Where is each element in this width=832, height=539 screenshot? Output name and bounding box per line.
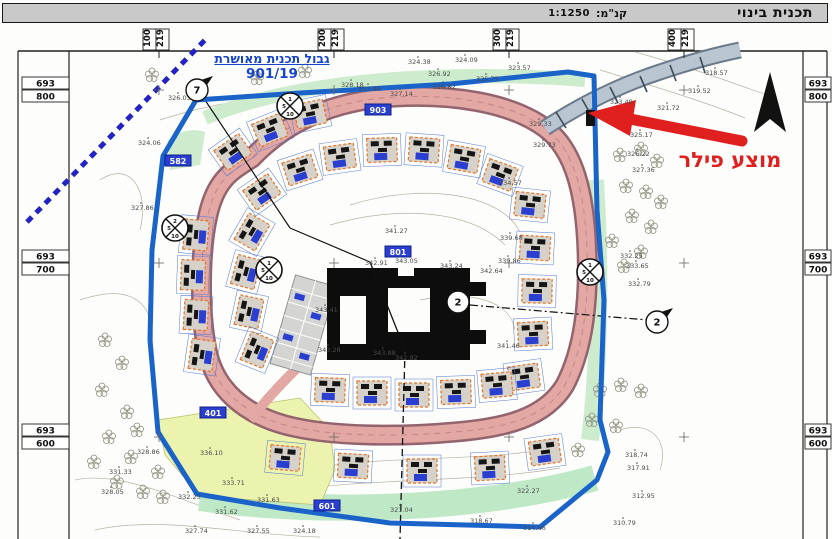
- tree-symbol: [152, 465, 165, 479]
- elevation-label: 312.95: [632, 492, 655, 500]
- elevation-label: 328.05: [101, 488, 124, 496]
- elevation-label: 332.79: [628, 280, 651, 288]
- elevation-label: 323.49: [610, 98, 633, 106]
- house-building: [443, 140, 486, 178]
- elevation-label: 327.36: [632, 166, 655, 174]
- grid-coordinate-text: 693: [809, 253, 828, 263]
- elevation-label: 310.79: [613, 519, 636, 527]
- tree-symbol: [146, 68, 159, 82]
- road-number-label: 401: [200, 407, 226, 418]
- house-number-tag: [448, 395, 461, 402]
- grid-coordinate-text: 600: [809, 440, 828, 450]
- grid-coordinate-text: 800: [36, 93, 55, 103]
- house-building: [518, 275, 557, 308]
- house-building: [362, 133, 401, 166]
- road-number-label: 582: [165, 155, 191, 166]
- house-building: [333, 449, 373, 483]
- grid-coordinate-text: 693: [36, 427, 55, 437]
- elevation-label: 331.62: [215, 508, 238, 516]
- house-building: [176, 255, 209, 294]
- road-number-label: 601: [314, 500, 340, 511]
- elevation-label: 318.74: [625, 451, 648, 459]
- elevation-label: 326.22: [627, 150, 650, 158]
- boundary-plan-number: 901/19: [192, 66, 352, 82]
- grid-cross: [154, 258, 164, 268]
- elevation-label: 324.09: [455, 56, 478, 64]
- tree-symbol: [88, 455, 101, 469]
- elevation-label: 343.24: [440, 262, 463, 270]
- tree-symbol: [137, 485, 150, 499]
- detail-marker-number: 7: [194, 86, 201, 97]
- house-number-tag: [414, 474, 427, 481]
- tree-symbol: [606, 234, 619, 248]
- elevation-label: 322.27: [517, 487, 540, 495]
- section-marker-number: 1: [288, 97, 292, 103]
- elevation-label: 325.77: [476, 75, 499, 83]
- house-number-tag: [196, 270, 203, 283]
- elevation-label: 327.55: [247, 527, 270, 535]
- elevation-label: 327.86: [131, 204, 154, 212]
- house-building: [235, 326, 279, 373]
- elevation-label: 331.33: [109, 468, 132, 476]
- grid-cross: [679, 432, 689, 442]
- grid-coordinate-side: 693600: [805, 424, 831, 450]
- elevation-label: 333.65: [626, 262, 649, 270]
- grid-cross: [154, 85, 164, 95]
- grid-coordinate-side: 693800: [805, 77, 831, 103]
- elevation-label: 326.82: [433, 83, 456, 91]
- grid-coordinate-text: 600: [36, 440, 55, 450]
- elevation-label: 324.38: [408, 58, 431, 66]
- grid-coordinate-text: 693: [809, 427, 828, 437]
- elevation-label: 321.72: [657, 104, 680, 112]
- section-marker-number: 10: [286, 112, 294, 118]
- road-number-text: 601: [319, 502, 336, 511]
- grid-cross: [329, 258, 339, 268]
- house-building: [470, 451, 510, 485]
- house-number-tag: [198, 230, 206, 244]
- tree-symbol: [111, 475, 124, 489]
- grid-coordinate-side: 693700: [805, 250, 831, 276]
- tree-symbol: [614, 148, 627, 162]
- road-number-text: 401: [205, 409, 222, 418]
- house-building: [477, 153, 524, 196]
- house-number-tag: [276, 460, 290, 468]
- tree-symbol: [103, 430, 116, 444]
- grid-coordinate-top: 219300: [493, 29, 519, 58]
- elevation-label: 328.86: [137, 448, 160, 456]
- site-plan-map: 326.03324.38324.09323.57325.77326.92326.…: [0, 0, 832, 539]
- section-marker-number: 2: [173, 219, 177, 225]
- grid-coordinate-text: 693: [809, 80, 828, 90]
- elevation-label: 343.88: [373, 349, 396, 357]
- elevation-label: 323.57: [508, 64, 531, 72]
- house-number-tag: [525, 337, 538, 345]
- elevation-label: 326.92: [428, 70, 451, 78]
- elevation-label: 336.10: [200, 449, 223, 457]
- elevation-label: 341.46: [497, 342, 520, 350]
- house-number-tag: [374, 153, 387, 160]
- grid-coordinate-text: 700: [36, 266, 55, 276]
- grid-coordinate-text: 693: [36, 253, 55, 263]
- house-building: [436, 375, 475, 408]
- house-building: [310, 373, 349, 406]
- elevation-label: 327.94: [358, 85, 381, 93]
- house-number-tag: [344, 469, 357, 477]
- detail-marker: 2: [646, 308, 673, 333]
- house-building: [179, 295, 213, 335]
- tree-symbol: [157, 490, 170, 504]
- house-number-tag: [364, 396, 377, 403]
- tree-symbol: [640, 185, 653, 199]
- section-marker: 1510: [277, 93, 303, 119]
- grid-coordinate-top: 219100: [143, 29, 169, 58]
- elevation-label: 342.91: [365, 259, 388, 267]
- section-marker: 2510: [162, 215, 188, 241]
- house-number-tag: [482, 471, 495, 479]
- boundary-label-text: גבול תכנית מאושרת: [192, 51, 352, 66]
- tree-symbol: [645, 220, 658, 234]
- elevation-label: 318.57: [705, 69, 728, 77]
- elevation-label: 333.71: [222, 479, 245, 487]
- house-number-tag: [526, 251, 539, 259]
- tree-symbol: [572, 443, 585, 457]
- detail-marker-number: 2: [455, 298, 462, 309]
- house-building: [319, 139, 361, 176]
- elevation-label: 324.06: [138, 139, 161, 147]
- section-marker-number: 10: [586, 278, 594, 284]
- section-marker-number: 10: [265, 276, 273, 282]
- house-number-tag: [406, 398, 419, 405]
- house-building: [395, 379, 433, 411]
- grid-coordinate-text: 300: [493, 29, 503, 47]
- house-number-tag: [521, 207, 535, 215]
- elevation-label: 341.27: [385, 227, 408, 235]
- elevation-label: 325.17: [630, 131, 653, 139]
- grid-cross: [679, 258, 689, 268]
- approved-plan-boundary-label: גבול תכנית מאושרת 901/19: [192, 51, 352, 82]
- house-building: [277, 149, 323, 191]
- road-number-label: 801: [385, 246, 411, 257]
- grid-coordinate-text: 219: [156, 29, 166, 47]
- section-marker: 1510: [577, 259, 603, 285]
- grid-coordinate-text: 400: [668, 29, 678, 47]
- grid-coordinate-text: 219: [331, 29, 341, 47]
- house-building: [353, 377, 391, 409]
- elevation-label: 342.92: [395, 354, 418, 362]
- tree-symbol: [116, 356, 129, 370]
- section-marker-number: 5: [167, 226, 171, 232]
- elevation-label: 327.74: [185, 527, 208, 535]
- central-building: [327, 268, 486, 360]
- house-number-tag: [322, 393, 335, 400]
- house-building: [403, 455, 441, 487]
- elevation-label: 329.73: [533, 141, 556, 149]
- plan-sheet: { "header": { "title": "תכנית בינוי", "s…: [0, 0, 832, 539]
- elevation-label: 332.25: [620, 252, 643, 260]
- elevation-label: 329.33: [529, 120, 552, 128]
- section-marker-number: 5: [282, 104, 286, 110]
- house-number-tag: [199, 310, 207, 323]
- house-building: [404, 133, 444, 168]
- grid-coordinate-text: 700: [809, 266, 828, 276]
- tree-symbol: [121, 405, 134, 419]
- tree-symbol: [131, 423, 144, 437]
- tree-symbol: [620, 179, 633, 193]
- elevation-label: 342.64: [480, 267, 503, 275]
- road-number-text: 801: [390, 248, 407, 257]
- house-number-tag: [415, 152, 428, 160]
- elevation-label: 324.18: [293, 527, 316, 535]
- section-marker: 1510: [256, 257, 282, 283]
- elevation-label: 321.04: [390, 506, 413, 514]
- elevation-label: 339.68: [500, 234, 523, 242]
- elevation-label: 343.41: [315, 306, 338, 314]
- grid-coordinate-side: 693600: [22, 424, 69, 450]
- elevation-label: 318.67: [470, 517, 493, 525]
- grid-coordinate-text: 200: [318, 29, 328, 47]
- section-marker-number: 1: [267, 261, 271, 267]
- section-marker-number: 5: [261, 268, 265, 274]
- grid-coordinate-text: 693: [36, 80, 55, 90]
- grid-coordinate-text: 219: [681, 29, 691, 47]
- grid-coordinate-side: 693700: [22, 250, 69, 276]
- grid-coordinate-top: 219400: [668, 29, 694, 58]
- grid-coordinate-text: 219: [506, 29, 516, 47]
- parking-lot: [270, 275, 336, 375]
- elevation-label: 317.91: [627, 464, 650, 472]
- road-number-text: 582: [170, 157, 187, 166]
- road-number-text: 903: [370, 106, 387, 115]
- section-marker-number: 1: [588, 263, 592, 269]
- house-building: [477, 367, 518, 402]
- elevation-label: 343.05: [395, 257, 418, 265]
- detail-marker-number: 2: [654, 318, 661, 329]
- house-number-tag: [529, 294, 542, 301]
- north-arrow-icon: [754, 72, 786, 132]
- elevation-label: 327.14: [390, 90, 413, 98]
- elevation-label: 314.46: [523, 524, 546, 532]
- tree-symbol: [99, 333, 112, 347]
- road-number-label: 903: [365, 104, 391, 115]
- elevation-label: 334.57: [499, 179, 522, 187]
- house-building: [229, 208, 276, 257]
- tree-symbol: [635, 384, 648, 398]
- elevation-label: 319.52: [688, 87, 711, 95]
- grid-cross: [504, 85, 514, 95]
- grid-coordinate-text: 100: [143, 29, 153, 47]
- elevation-label: 331.63: [257, 496, 280, 504]
- grid-coordinate-side: 693800: [22, 77, 69, 103]
- section-marker-number: 10: [171, 234, 179, 240]
- tree-symbol: [125, 450, 138, 464]
- tree-symbol: [626, 209, 639, 223]
- tree-symbol: [610, 419, 623, 433]
- proposed-pillar-label: מוצע פילר: [655, 148, 805, 172]
- grid-coordinate-text: 800: [809, 93, 828, 103]
- house-number-tag: [489, 388, 503, 396]
- tree-symbol: [615, 378, 628, 392]
- house-building: [509, 187, 550, 223]
- section-marker-number: 5: [582, 270, 586, 276]
- house-building: [524, 434, 566, 471]
- elevation-label: 332.25: [178, 493, 201, 501]
- elevation-label: 343.28: [318, 346, 341, 354]
- tree-symbol: [655, 195, 668, 209]
- tree-symbol: [96, 383, 109, 397]
